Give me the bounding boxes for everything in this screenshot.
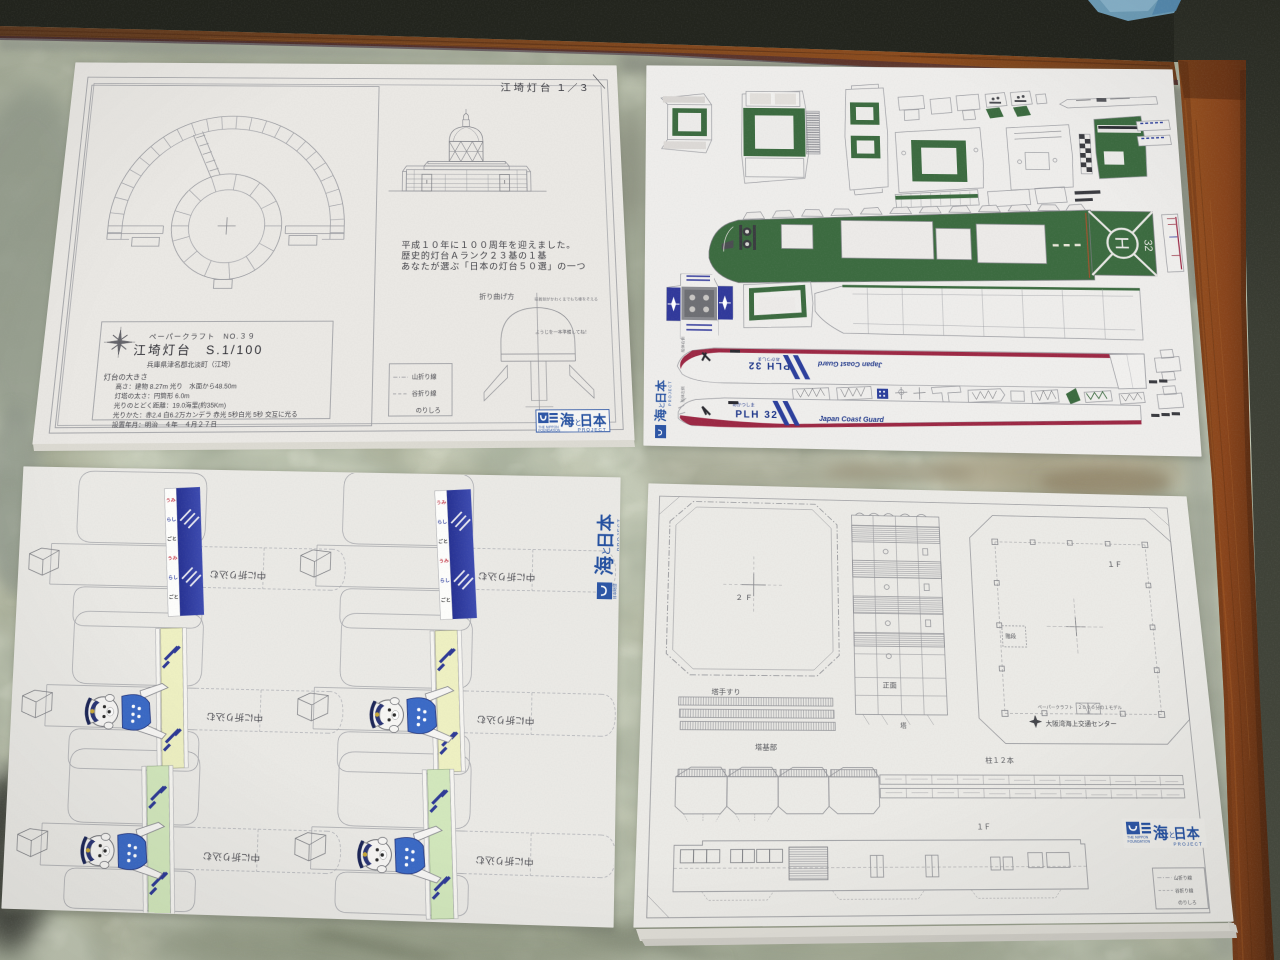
svg-text:あかつしま: あかつしま <box>757 356 780 363</box>
svg-text:PROJECT: PROJECT <box>578 427 607 433</box>
svg-text:ペーパークラフト NO.３９: ペーパークラフト NO.３９ <box>149 332 256 341</box>
svg-text:海: 海 <box>653 409 668 423</box>
svg-text:船体左側: 船体左側 <box>680 386 685 402</box>
svg-text:ようじを一本準備してね！: ようじを一本準備してね！ <box>535 328 589 335</box>
svg-text:H: H <box>1111 236 1134 250</box>
svg-text:中に折り込む: 中に折り込む <box>206 711 263 724</box>
svg-text:設置年月：明治 ４年 ４月２７日: 設置年月：明治 ４年 ４月２７日 <box>112 420 218 430</box>
svg-text:灯塔の太さ：円筒形 6.0m: 灯塔の太さ：円筒形 6.0m <box>114 391 190 401</box>
svg-text:FOUNDATION: FOUNDATION <box>538 428 560 433</box>
svg-text:江埼灯台 S.1/100: 江埼灯台 S.1/100 <box>133 342 264 358</box>
svg-text:光りかた：赤2.4 白6.2万カンデラ 赤光 5秒白光 5秒: 光りかた：赤2.4 白6.2万カンデラ 赤光 5秒白光 5秒 交互に光る <box>112 410 297 420</box>
svg-text:日本: 日本 <box>595 513 617 549</box>
svg-text:階段: 階段 <box>1005 632 1016 640</box>
svg-text:１／３: １／３ <box>556 82 590 94</box>
svg-text:ペーパークラフト ２０００分の１モデル: ペーパークラフト ２０００分の１モデル <box>1037 703 1122 711</box>
svg-text:Japan Coast Guard: Japan Coast Guard <box>819 415 885 424</box>
svg-text:日本: 日本 <box>653 380 668 404</box>
svg-text:１Ｆ: １Ｆ <box>976 824 991 832</box>
svg-text:塔: 塔 <box>900 721 907 730</box>
svg-text:のりしろ: のりしろ <box>1178 900 1197 907</box>
svg-text:PLH 32: PLH 32 <box>735 408 778 420</box>
svg-text:あなたが選ぶ「日本の灯台５０選」の一つ: あなたが選ぶ「日本の灯台５０選」の一つ <box>401 261 586 272</box>
svg-text:高さ：建物 8.27m 光り 水面から48.50m: 高さ：建物 8.27m 光り 水面から48.50m <box>115 382 237 392</box>
svg-text:海: 海 <box>592 556 617 576</box>
svg-text:中に折り込む: 中に折り込む <box>202 851 260 864</box>
svg-text:うみ: うみ <box>439 558 450 565</box>
svg-text:中に折り込む: 中に折り込む <box>478 571 536 584</box>
svg-text:２Ｆ: ２Ｆ <box>735 594 754 602</box>
svg-text:兵庫県津名郡北淡町（江埼）: 兵庫県津名郡北淡町（江埼） <box>146 360 235 369</box>
svg-text:うみ: うみ <box>436 500 447 507</box>
svg-text:接着剤がかわくまでもち棒をそえる: 接着剤がかわくまでもち棒をそえる <box>534 296 598 302</box>
svg-text:正面: 正面 <box>882 681 897 690</box>
svg-text:中に折り込む: 中に折り込む <box>475 855 534 868</box>
svg-text:Japan Coast Guard: Japan Coast Guard <box>817 359 883 368</box>
svg-text:江埼灯台: 江埼灯台 <box>500 81 553 94</box>
svg-text:大阪湾海上交通センター: 大阪湾海上交通センター <box>1045 719 1117 728</box>
svg-text:PROJECT: PROJECT <box>668 380 672 406</box>
svg-text:うみ: うみ <box>167 555 177 562</box>
svg-text:１Ｆ: １Ｆ <box>1107 560 1123 569</box>
svg-text:歴史的灯台Ａランク２３基の１基: 歴史的灯台Ａランク２３基の１基 <box>401 250 547 261</box>
svg-text:折り曲げ方: 折り曲げ方 <box>479 291 514 301</box>
svg-text:灯台の大きさ: 灯台の大きさ <box>103 371 148 381</box>
svg-text:谷折り線: 谷折り線 <box>1175 887 1195 895</box>
svg-text:うみ: うみ <box>166 498 176 505</box>
svg-text:中に折り込む: 中に折り込む <box>209 569 266 581</box>
svg-text:FOUNDATION: FOUNDATION <box>1127 839 1151 844</box>
svg-text:海: 海 <box>1152 824 1169 842</box>
svg-text:のりしろ: のりしろ <box>416 407 441 415</box>
svg-text:船体右側: 船体右側 <box>680 336 685 352</box>
svg-text:日本財団: 日本財団 <box>612 583 618 599</box>
svg-text:光りのとどく距離：19.0海里(約35Km): 光りのとどく距離：19.0海里(約35Km) <box>113 401 226 411</box>
svg-text:塔基部: 塔基部 <box>755 742 778 752</box>
svg-text:山折り線: 山折り線 <box>412 372 437 381</box>
svg-text:中に折り込む: 中に折り込む <box>476 714 534 727</box>
svg-text:柱１２本: 柱１２本 <box>985 755 1014 765</box>
svg-text:山折り線: 山折り線 <box>1173 874 1193 882</box>
svg-text:塔手すり: 塔手すり <box>711 687 740 697</box>
svg-text:日本: 日本 <box>1173 825 1202 842</box>
svg-text:平成１０年に１００周年を迎えました。: 平成１０年に１００周年を迎えました。 <box>401 240 576 251</box>
svg-text:谷折り線: 谷折り線 <box>412 389 437 398</box>
svg-text:PROJECT: PROJECT <box>1173 841 1203 847</box>
svg-text:海: 海 <box>560 412 575 429</box>
svg-text:32: 32 <box>1141 240 1154 252</box>
